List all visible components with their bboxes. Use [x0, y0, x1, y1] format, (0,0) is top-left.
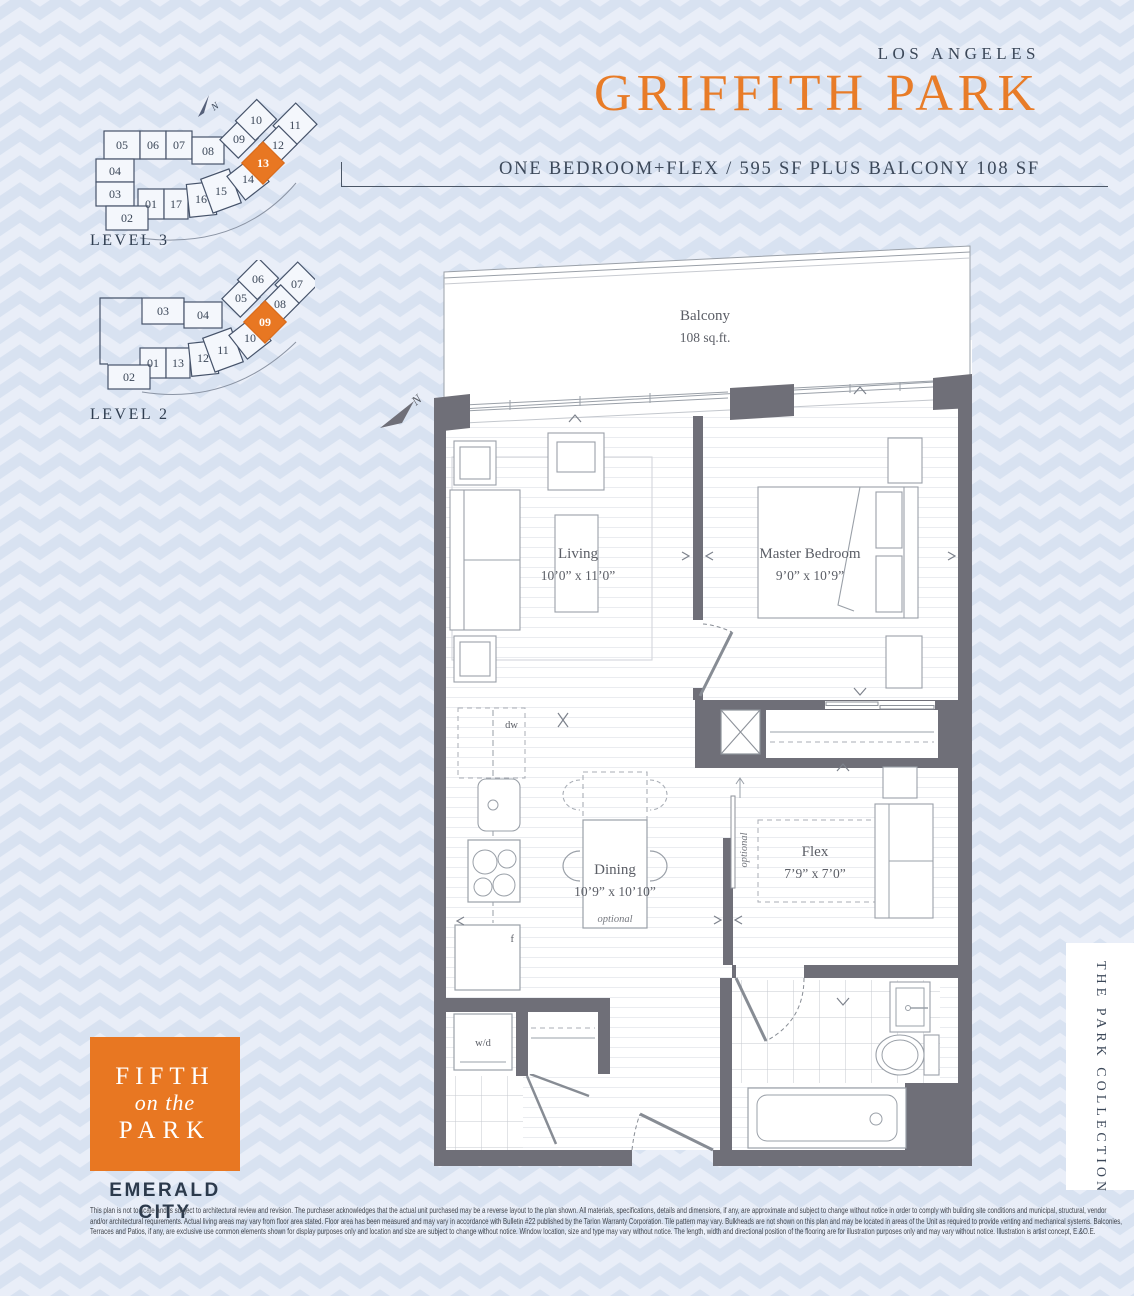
svg-text:06: 06 [147, 138, 159, 152]
svg-text:7’9” x 7’0”: 7’9” x 7’0” [784, 866, 845, 881]
page-title: GRIFFITH PARK [594, 64, 1040, 123]
svg-text:Flex: Flex [802, 844, 829, 860]
svg-text:dw: dw [505, 720, 518, 731]
svg-text:03: 03 [157, 304, 169, 318]
svg-text:08: 08 [202, 144, 214, 158]
header-rule [341, 186, 1108, 187]
keyplan-level3: N 05 06 07 08 04 03 01 17 16 02 15 14 09… [88, 93, 323, 251]
svg-text:09: 09 [233, 132, 245, 146]
svg-text:03: 03 [109, 187, 121, 201]
disclaimer: This plan is not to scale and is subject… [90, 1205, 1090, 1237]
svg-text:07: 07 [173, 138, 185, 152]
disclaimer-line3: Terraces and Patios, if any, are exclusi… [90, 1226, 810, 1237]
svg-text:06: 06 [252, 272, 264, 286]
logo-line3: PARK [90, 1117, 240, 1145]
svg-text:01: 01 [147, 356, 159, 370]
svg-text:optional: optional [739, 832, 750, 867]
svg-text:Living: Living [558, 546, 598, 562]
logo-line2: on the [90, 1090, 240, 1116]
svg-text:10’9” x 10’10”: 10’9” x 10’10” [574, 884, 656, 899]
svg-text:11: 11 [289, 118, 301, 132]
svg-text:01: 01 [145, 197, 157, 211]
svg-text:15: 15 [215, 184, 227, 198]
logo-line1: FIFTH [90, 1063, 240, 1091]
svg-text:Dining: Dining [594, 862, 636, 878]
svg-text:02: 02 [123, 370, 135, 384]
svg-text:10: 10 [244, 331, 256, 345]
north-arrow-plan: N [378, 388, 432, 434]
header-rule-tick [341, 162, 342, 187]
svg-text:10’0” x 11’0”: 10’0” x 11’0” [541, 568, 615, 583]
level3-label: LEVEL 3 [90, 232, 170, 250]
disclaimer-line2: and/or architectural requirements. Actua… [90, 1216, 810, 1227]
level2-label: LEVEL 2 [90, 406, 170, 424]
svg-text:12: 12 [197, 351, 209, 365]
svg-text:04: 04 [109, 164, 121, 178]
svg-text:10: 10 [250, 113, 262, 127]
plan-subtitle: ONE BEDROOM+FLEX / 595 SF PLUS BALCONY 1… [499, 159, 1040, 180]
svg-text:08: 08 [274, 297, 286, 311]
svg-text:Master Bedroom: Master Bedroom [759, 546, 861, 562]
laundry-tile-floor [446, 1076, 523, 1150]
svg-text:108 sq.ft.: 108 sq.ft. [680, 330, 731, 345]
svg-text:07: 07 [291, 277, 303, 291]
north-arrow-keyplan: N [198, 95, 222, 117]
floorplan-drawing: Balcony 108 sq.ft. [430, 238, 990, 1188]
disclaimer-line1: This plan is not to scale and is subject… [90, 1205, 810, 1216]
collection-strip: THE PARK COLLECTION [1066, 943, 1134, 1190]
svg-text:04: 04 [197, 308, 209, 322]
svg-text:09: 09 [259, 315, 271, 329]
svg-text:N: N [209, 100, 223, 114]
svg-text:w/d: w/d [475, 1038, 492, 1049]
keyplan-level2: 03 04 01 13 12 02 11 10 05 06 07 08 09 [90, 260, 315, 410]
svg-text:17: 17 [170, 197, 182, 211]
svg-text:14: 14 [242, 172, 254, 186]
svg-text:02: 02 [121, 211, 133, 225]
city-label: LOS ANGELES [878, 44, 1040, 64]
collection-label: THE PARK COLLECTION [1092, 961, 1108, 1195]
svg-text:f: f [511, 934, 515, 945]
svg-text:11: 11 [217, 343, 229, 357]
floorplan-sheet: LOS ANGELES GRIFFITH PARK ONE BEDROOM+FL… [0, 0, 1134, 1296]
svg-text:Balcony: Balcony [680, 308, 730, 324]
svg-text:05: 05 [116, 138, 128, 152]
svg-text:12: 12 [272, 138, 284, 152]
fifth-on-the-park-logo: FIFTH on the PARK [90, 1037, 240, 1171]
svg-text:05: 05 [235, 291, 247, 305]
svg-text:9’0” x 10’9”: 9’0” x 10’9” [776, 568, 844, 583]
svg-text:13: 13 [172, 356, 184, 370]
svg-text:16: 16 [195, 192, 207, 206]
svg-text:optional: optional [597, 914, 632, 925]
svg-text:13: 13 [257, 156, 269, 170]
